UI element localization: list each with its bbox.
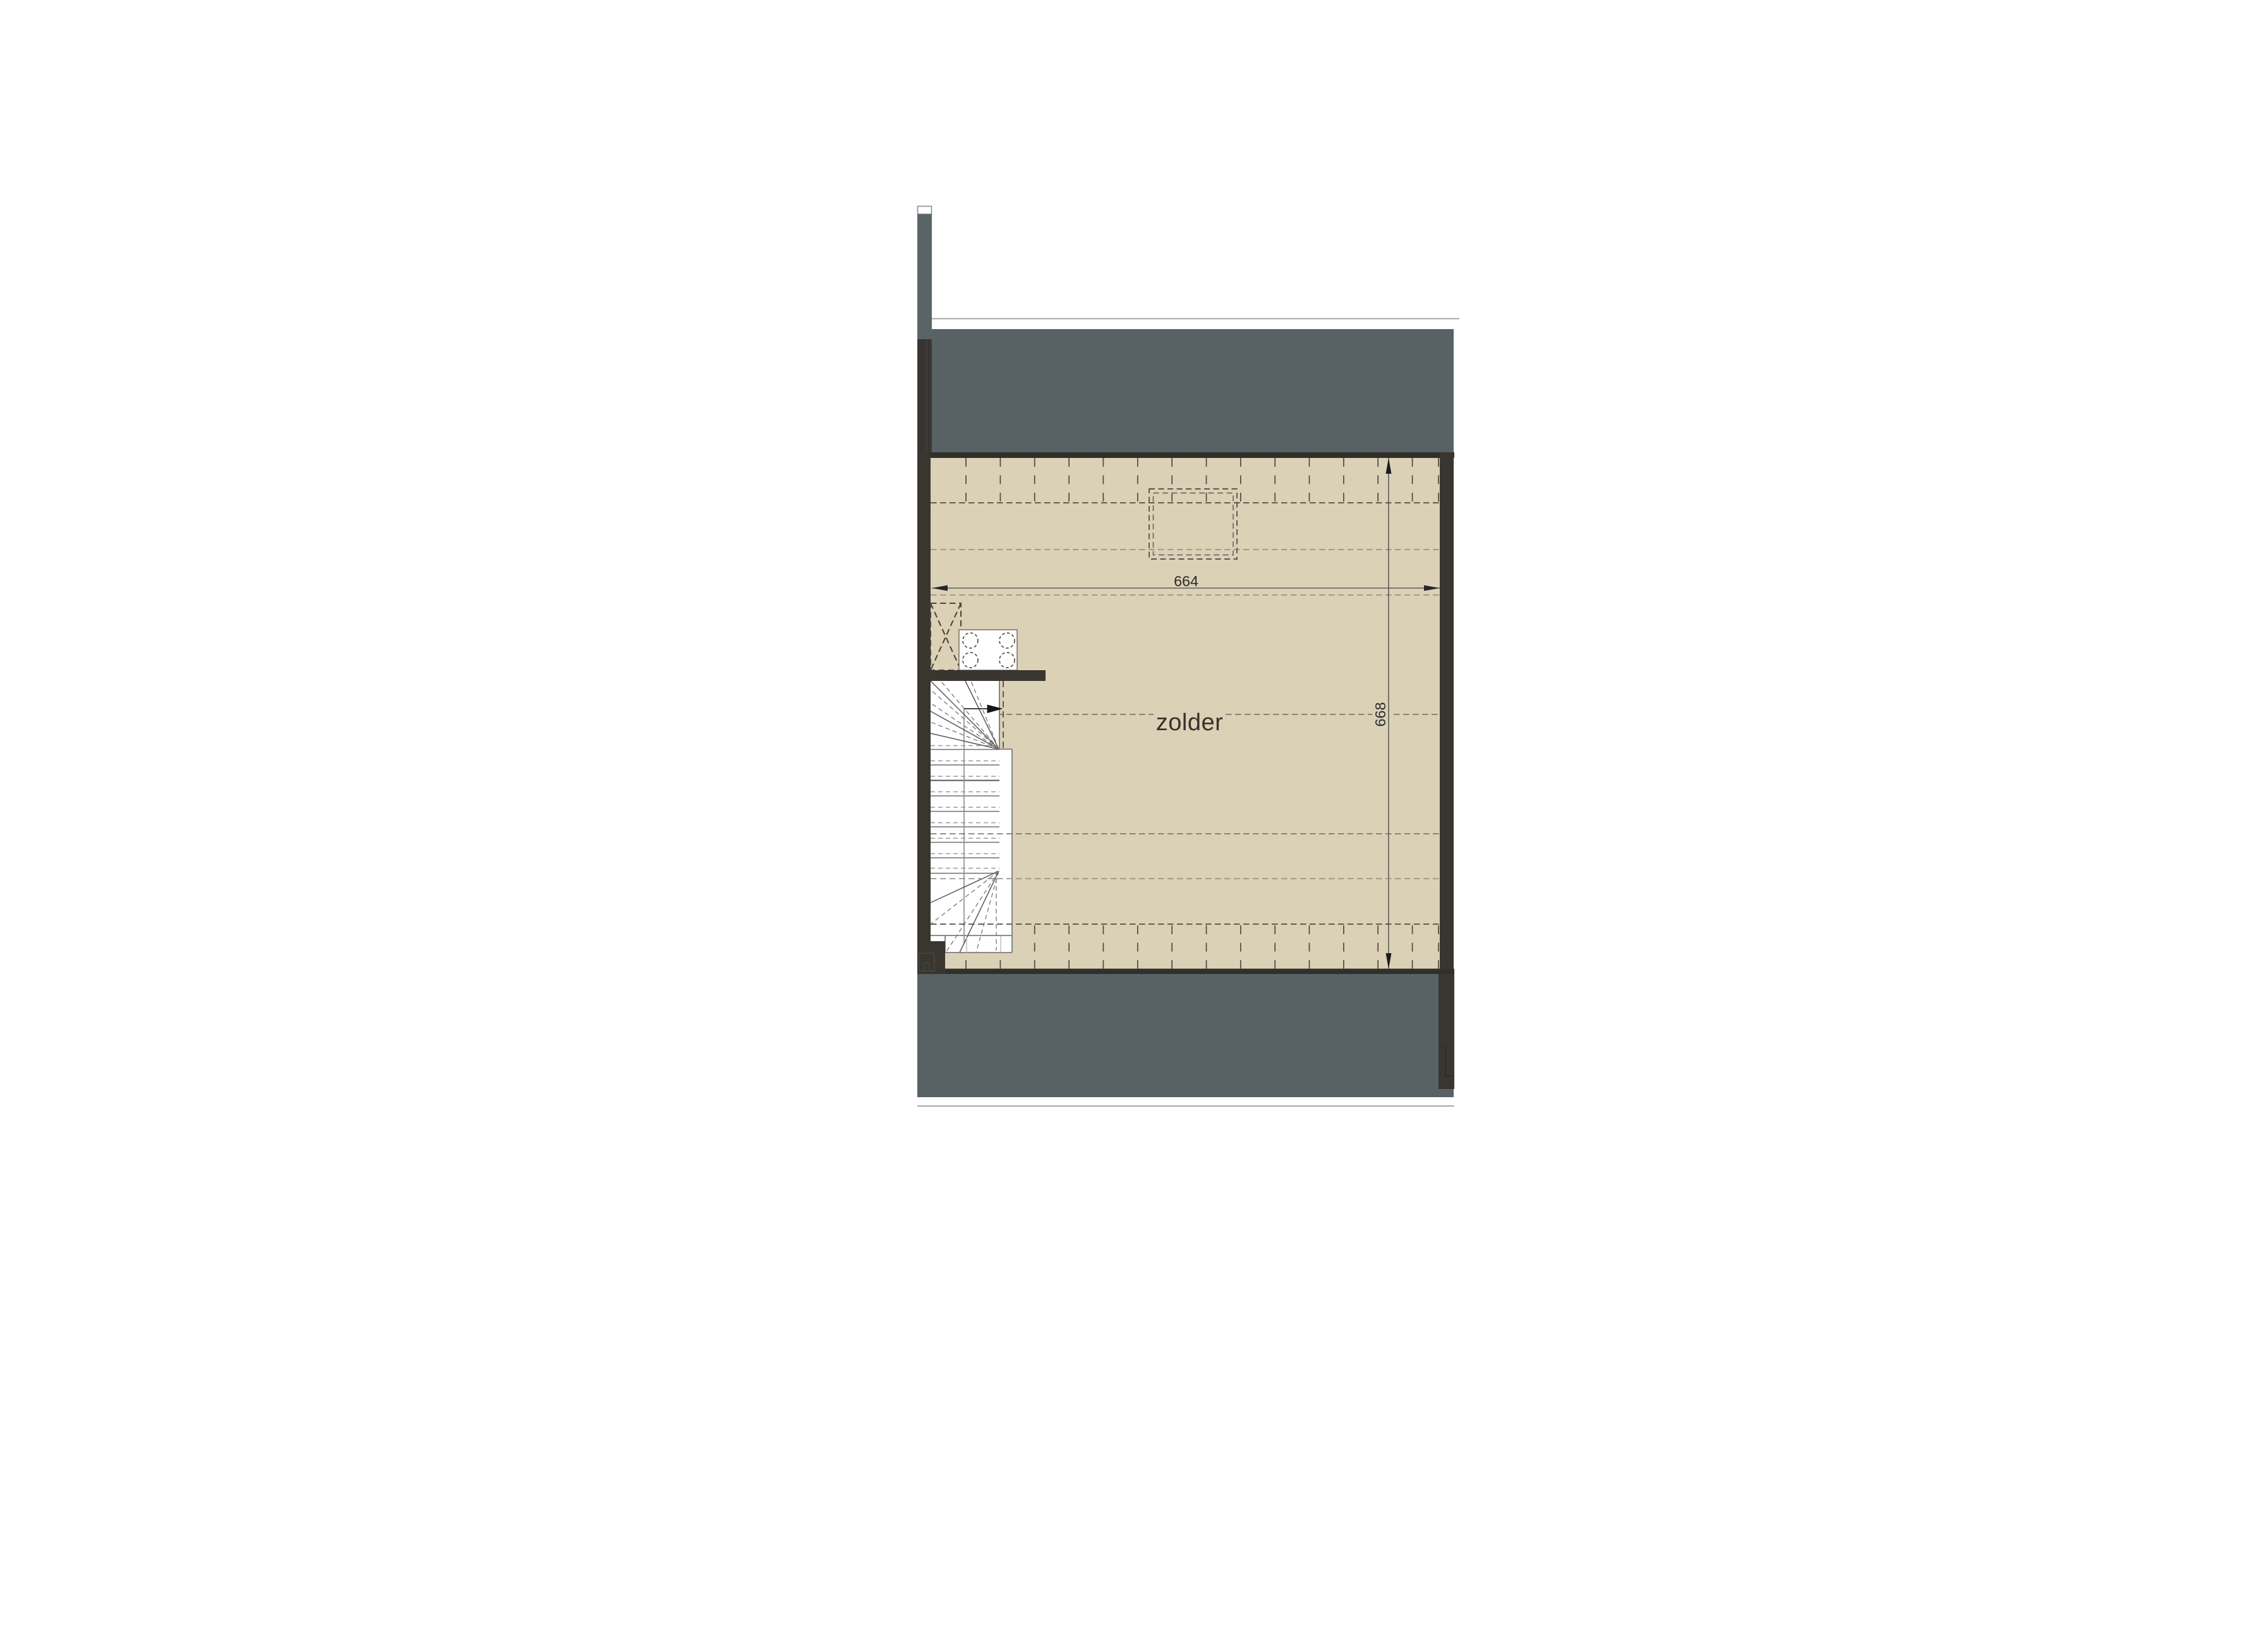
- svg-text:664: 664: [1174, 573, 1198, 589]
- svg-text:668: 668: [1372, 702, 1389, 727]
- svg-text:zolder: zolder: [1156, 709, 1224, 736]
